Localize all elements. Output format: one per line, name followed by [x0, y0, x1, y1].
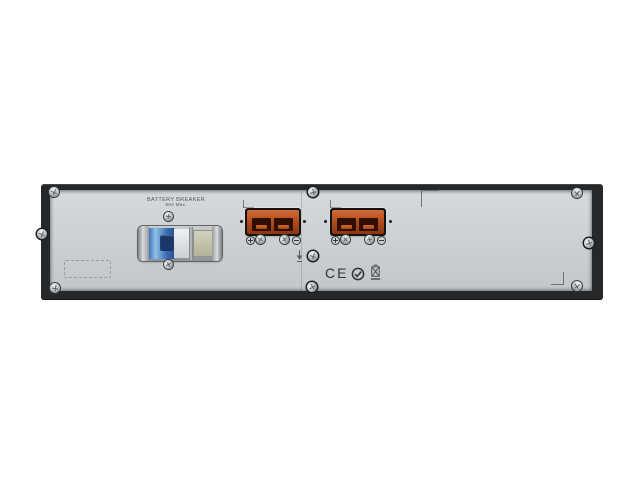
corner-mark-icon	[243, 200, 254, 208]
battery-breaker-rating-text: 50A Max.	[116, 202, 236, 207]
c-tick-mark-icon	[351, 267, 365, 281]
connector-slot	[252, 218, 271, 231]
ce-mark: CE	[325, 265, 348, 281]
connector-contact-tab	[341, 225, 352, 229]
connector-slot	[274, 218, 293, 231]
connector-contact-tab	[278, 225, 289, 229]
breaker-beige-section	[193, 230, 213, 257]
corner-mark-icon	[330, 200, 341, 208]
product-photo: BATTERY BREAKER 50A Max.	[0, 0, 640, 480]
connector-orange-body	[332, 210, 384, 234]
connector-orange-body	[247, 210, 299, 234]
panel-seam	[301, 190, 303, 291]
breaker-white-section	[174, 229, 190, 258]
alignment-dot	[240, 220, 243, 223]
weee-bin-icon	[370, 264, 381, 282]
breaker-right-cap	[212, 226, 222, 261]
connector-slot	[337, 218, 356, 231]
battery-breaker-label: BATTERY BREAKER 50A Max.	[116, 196, 236, 207]
alignment-dot	[389, 220, 392, 223]
corner-mark-icon	[551, 272, 564, 285]
label-placeholder	[64, 260, 111, 278]
breaker-left-cap	[138, 226, 149, 261]
battery-connector-2	[330, 208, 386, 236]
battery-connector-1	[245, 208, 301, 236]
alignment-dot	[324, 220, 327, 223]
minus-symbol-icon	[377, 236, 386, 245]
connector-slot	[359, 218, 378, 231]
minus-symbol-icon	[292, 236, 301, 245]
corner-mark-icon	[421, 190, 439, 207]
connector-contact-tab	[363, 225, 374, 229]
plus-symbol-icon	[331, 236, 340, 245]
plus-symbol-icon	[246, 236, 255, 245]
breaker-navy-button	[160, 235, 174, 251]
alignment-dot	[303, 220, 306, 223]
ground-icon	[294, 250, 305, 263]
connector-contact-tab	[256, 225, 267, 229]
battery-breaker-switch	[138, 226, 222, 261]
